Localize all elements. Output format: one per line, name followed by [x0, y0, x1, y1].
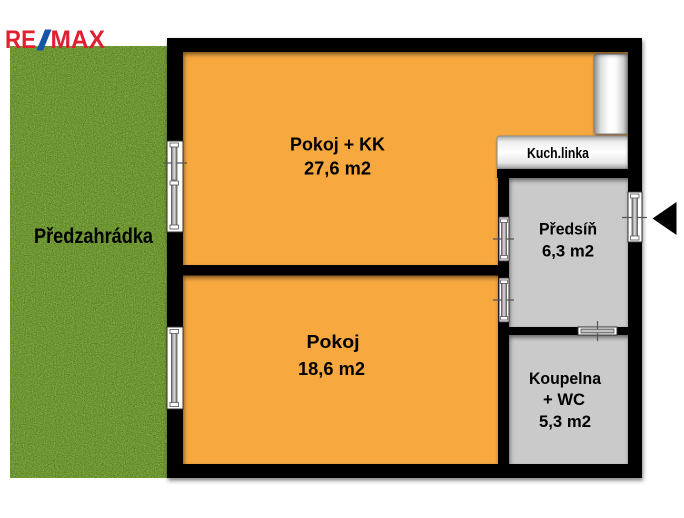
svg-text:Kuch.linka: Kuch.linka	[527, 145, 590, 162]
svg-text:27,6 m2: 27,6 m2	[304, 159, 371, 179]
svg-text:Pokoj: Pokoj	[307, 332, 360, 352]
svg-text:Koupelna: Koupelna	[529, 369, 602, 388]
svg-text:5,3 m2: 5,3 m2	[539, 412, 591, 431]
svg-text:Pokoj + KK: Pokoj + KK	[290, 135, 385, 155]
svg-text:+ WC: + WC	[543, 390, 585, 409]
svg-text:RE: RE	[5, 26, 36, 54]
svg-text:6,3 m2: 6,3 m2	[542, 242, 594, 261]
svg-text:Předsíň: Předsíň	[539, 220, 597, 239]
svg-text:Předzahrádka: Předzahrádka	[34, 225, 153, 248]
svg-text:18,6 m2: 18,6 m2	[298, 359, 365, 379]
svg-text:MAX: MAX	[51, 26, 106, 54]
